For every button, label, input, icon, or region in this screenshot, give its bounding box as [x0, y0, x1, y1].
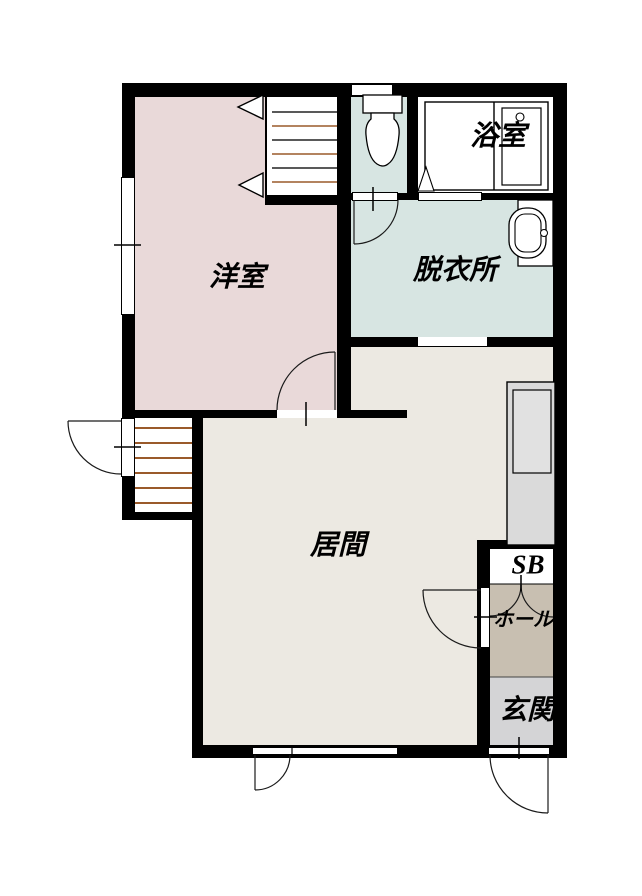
- wall-vestibule-bottom: [122, 512, 203, 520]
- wall-toilet-bath: [407, 83, 418, 200]
- wall-yoshitsu-bottom: [122, 410, 407, 418]
- label-bath: 浴室: [470, 123, 526, 151]
- living-terrace-door: [255, 755, 290, 790]
- room-toilet: [351, 97, 407, 193]
- entry-door-gap: [121, 418, 135, 477]
- yoshitsu-door-gap: [277, 410, 337, 418]
- label-datsuijo: 脱衣所: [413, 257, 497, 285]
- wall-living-left: [192, 410, 203, 755]
- closet-left-line: [265, 97, 267, 195]
- toilet-window: [351, 84, 393, 96]
- room-ima-nook: [351, 347, 553, 418]
- label-ima: 居間: [310, 532, 366, 560]
- bath-entry-gap: [418, 192, 482, 201]
- wall-sb-top: [477, 540, 567, 549]
- closet-area: [265, 97, 337, 195]
- genkan-door-gap: [488, 747, 550, 755]
- wall-right: [553, 83, 567, 758]
- hall-door-gap: [480, 587, 490, 648]
- wall-mid-vertical: [337, 83, 351, 418]
- yoshitsu-window: [121, 177, 135, 315]
- stair-vestibule: [135, 418, 192, 512]
- label-hall: ホール: [493, 610, 553, 630]
- label-genkan: 玄関: [499, 697, 555, 725]
- floor-plan: 洋室 浴室 脱衣所 居間 SB ホール 玄関: [0, 0, 642, 896]
- toilet-door-gap: [352, 192, 398, 201]
- label-yoshitsu: 洋室: [209, 264, 265, 292]
- label-sb: SB: [511, 552, 544, 579]
- genkan-door: [490, 755, 548, 813]
- wall-closet-bottom: [265, 195, 351, 205]
- datsuijo-opening: [418, 337, 487, 347]
- living-window-band: [252, 747, 398, 755]
- entry-door: [68, 421, 121, 474]
